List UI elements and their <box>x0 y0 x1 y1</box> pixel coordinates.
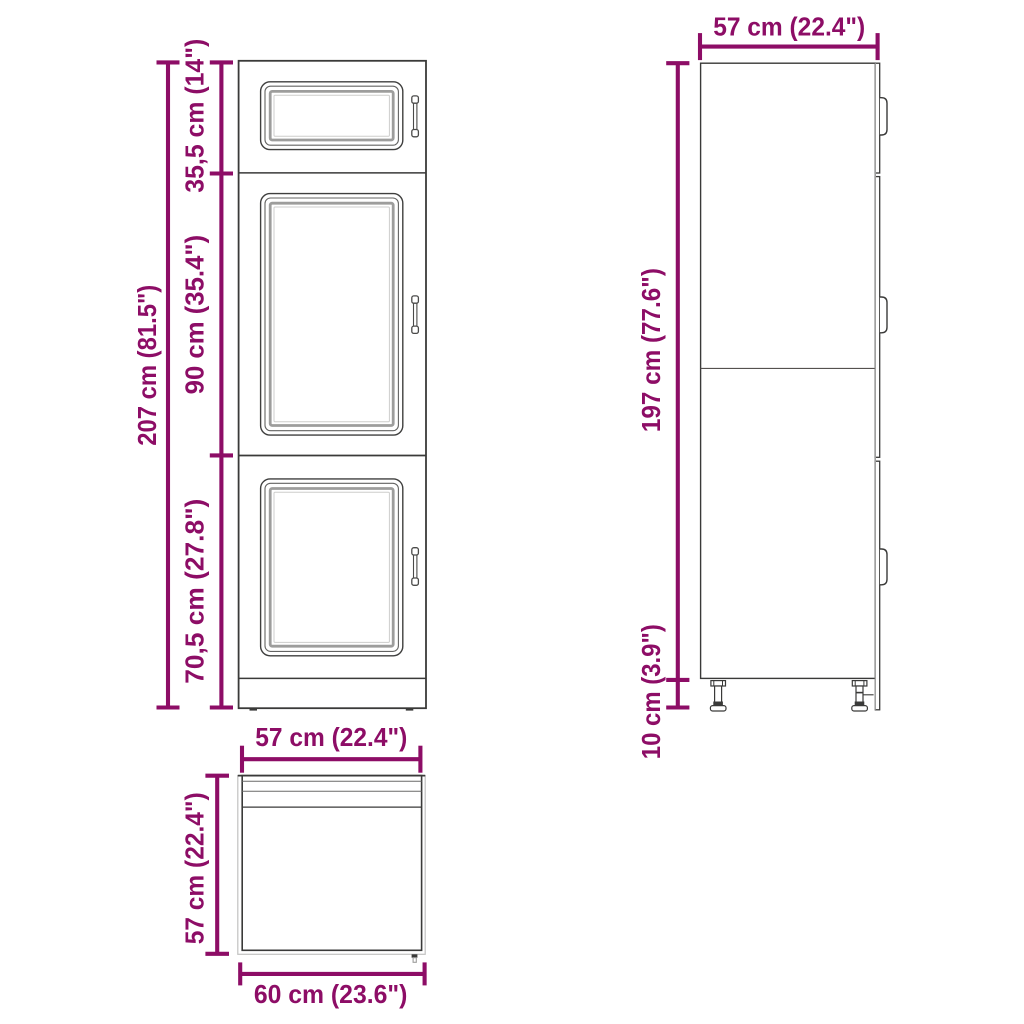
svg-text:10 cm (3.9"): 10 cm (3.9") <box>638 624 666 759</box>
svg-text:57 cm (22.4"): 57 cm (22.4") <box>255 724 407 752</box>
svg-text:57 cm (22.4"): 57 cm (22.4") <box>182 792 210 944</box>
svg-text:35,5 cm (14"): 35,5 cm (14") <box>182 39 210 193</box>
svg-text:90 cm (35.4"): 90 cm (35.4") <box>182 235 210 395</box>
svg-text:197 cm (77.6"): 197 cm (77.6") <box>638 268 666 432</box>
svg-text:207 cm (81.5"): 207 cm (81.5") <box>134 285 162 446</box>
svg-text:60 cm (23.6"): 60 cm (23.6") <box>254 981 408 1009</box>
svg-text:70,5 cm (27.8"): 70,5 cm (27.8") <box>182 499 210 684</box>
svg-text:57 cm (22.4"): 57 cm (22.4") <box>713 14 865 42</box>
